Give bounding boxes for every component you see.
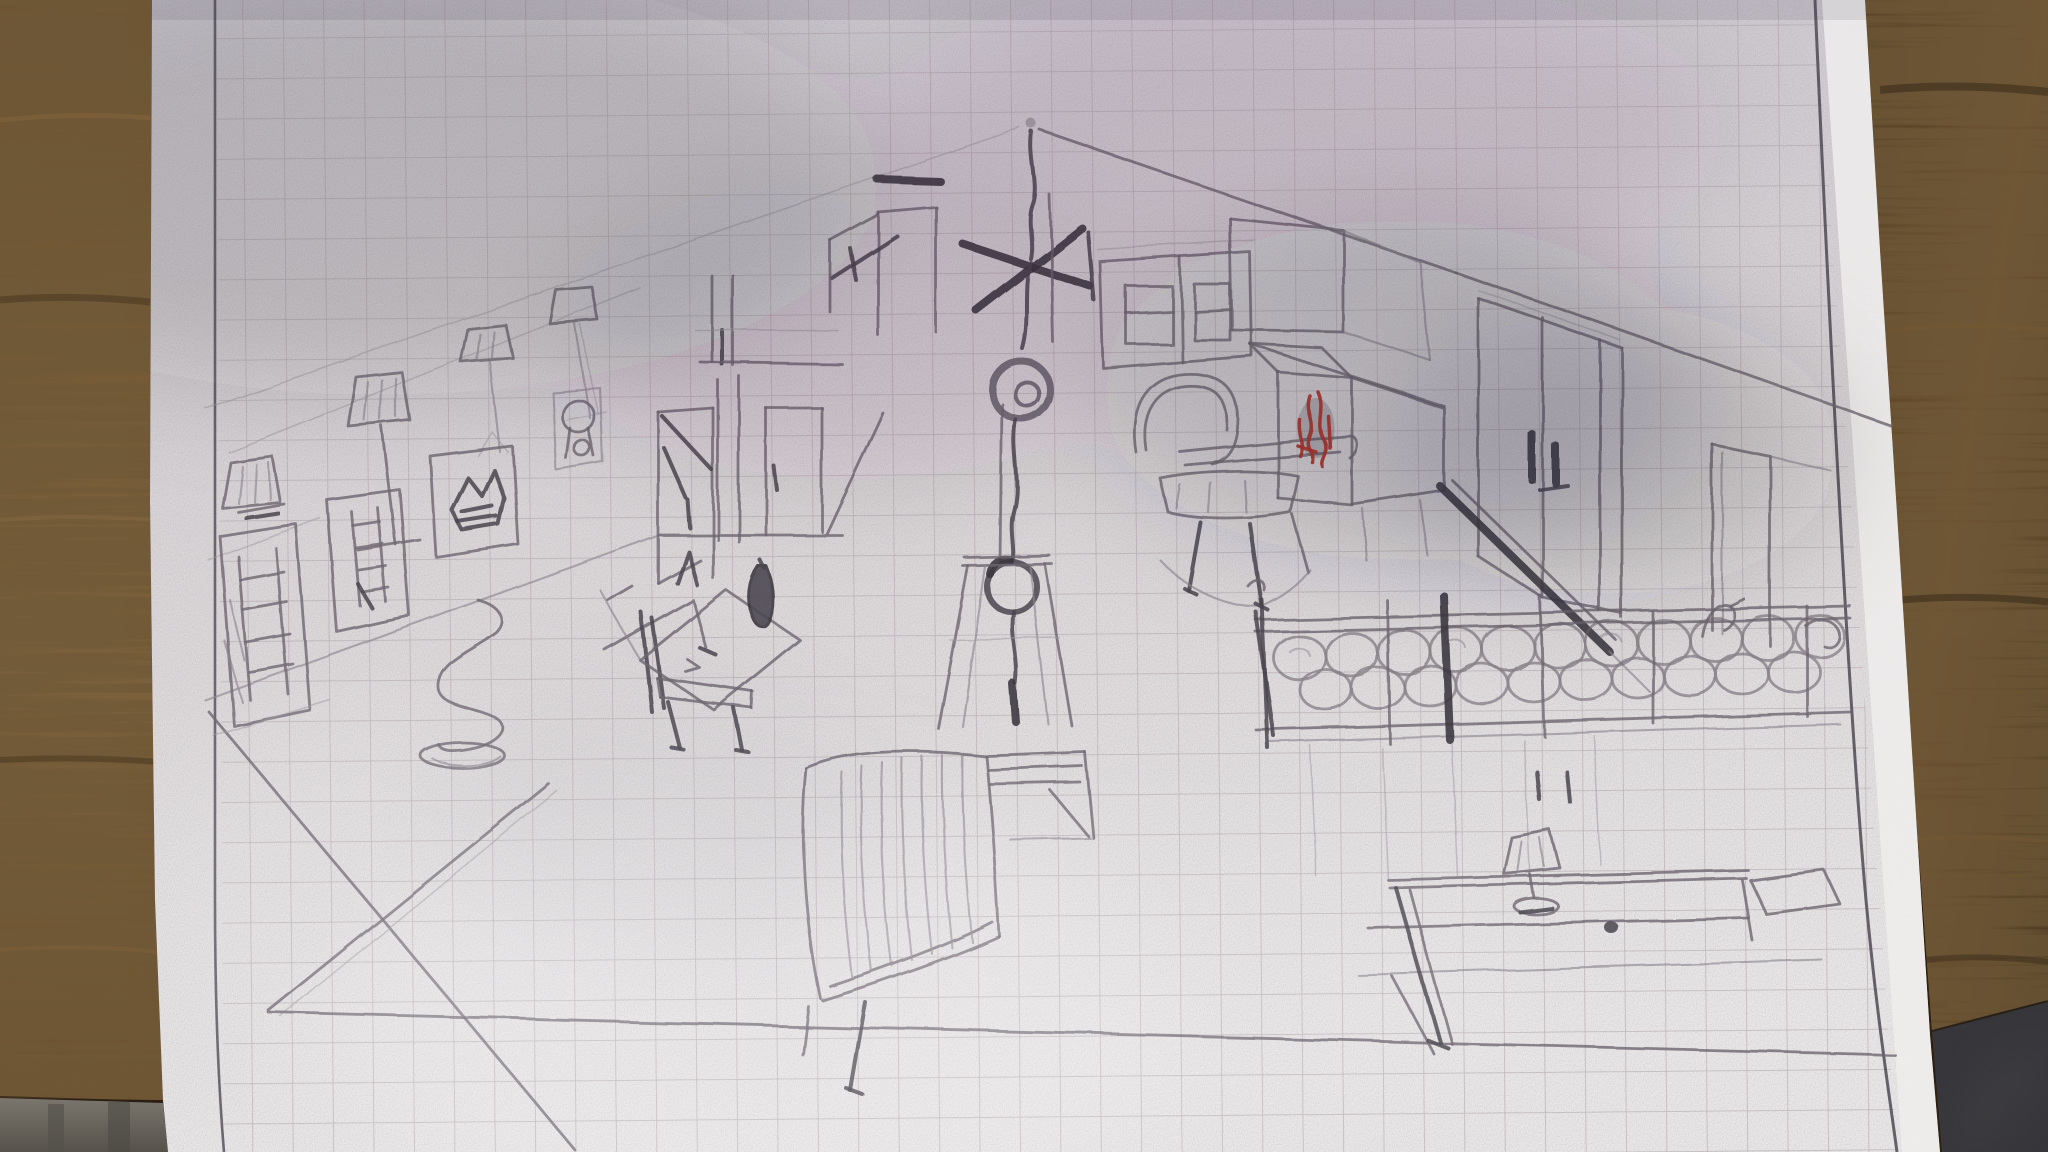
vase [749,566,773,627]
under-desk-gray [0,1098,168,1152]
sketch-photo-canvas [0,0,2048,1152]
photo-of-sketch [0,0,2048,1152]
